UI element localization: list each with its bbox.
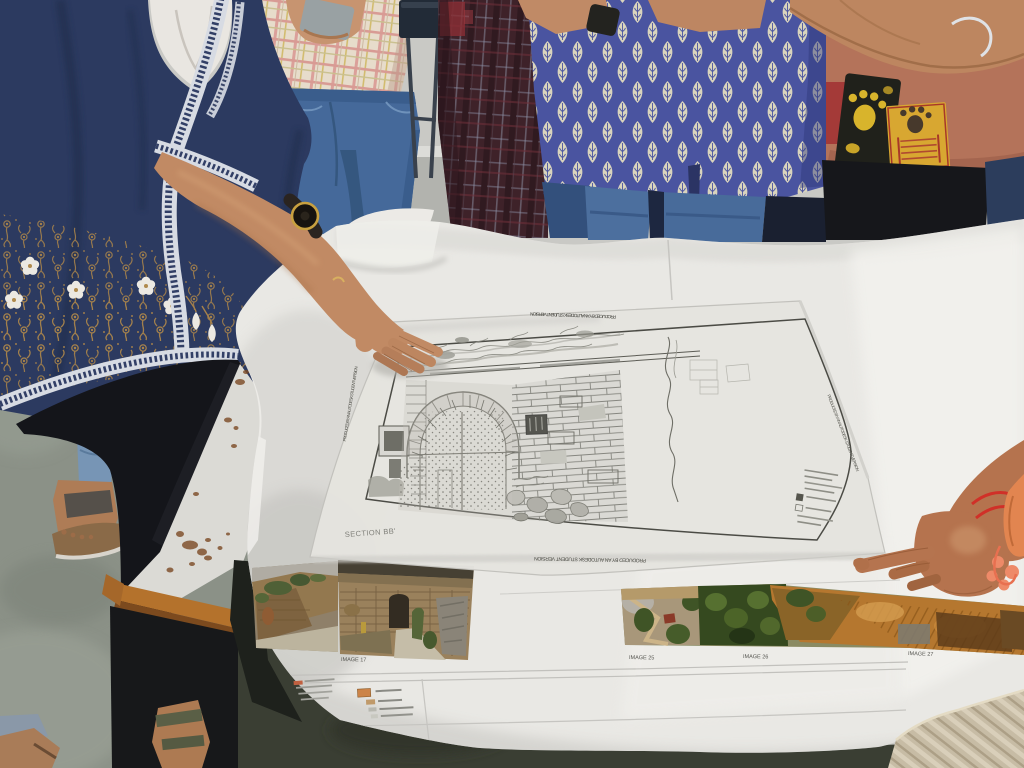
svg-text:IMAGE 17: IMAGE 17 — [341, 657, 366, 663]
svg-text:IMAGE 27: IMAGE 27 — [908, 651, 934, 658]
svg-text:IMAGE 26: IMAGE 26 — [743, 654, 768, 660]
svg-text:IMAGE 25: IMAGE 25 — [629, 655, 654, 661]
